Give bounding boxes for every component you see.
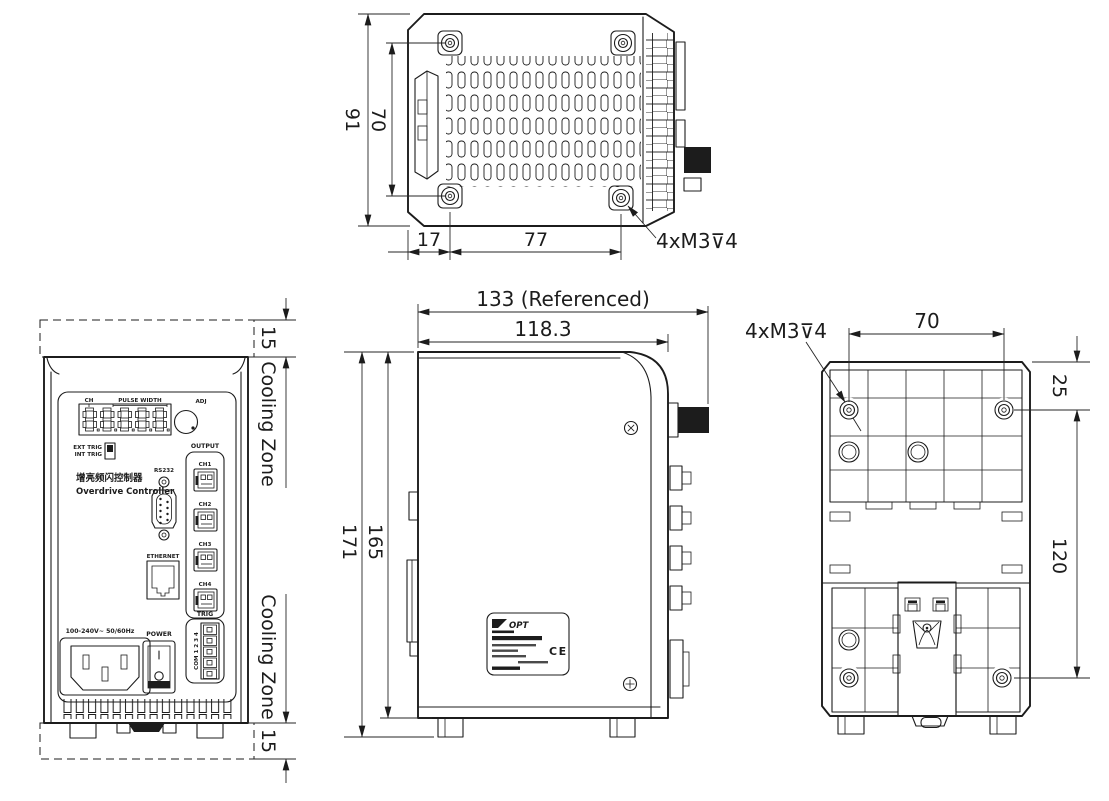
vent-hole-grid: [446, 56, 641, 187]
corner-screw-icon: [611, 31, 635, 55]
product-title-en: Overdrive Controller: [76, 487, 175, 497]
front-foot: [70, 723, 96, 738]
ch3-label: CH3: [199, 542, 212, 548]
rs232-label: RS232: [154, 468, 174, 474]
output-label: OUTPUT: [191, 443, 220, 450]
mount-screw-hole: [992, 398, 1017, 423]
front-view-dimensions: 15 Cooling Zone Cooling Zone 15: [248, 298, 296, 783]
back-foot: [990, 716, 1016, 734]
back-view: 4xM3⊽4 70 25 120: [745, 309, 1090, 734]
dim-133-referenced: 133 (Referenced): [476, 287, 650, 311]
dim-77: 77: [524, 229, 548, 251]
case-screw-icon: [622, 419, 640, 437]
dim-70-back: 70: [914, 309, 939, 333]
case-hole: [839, 442, 859, 462]
dim-25: 25: [1048, 374, 1070, 398]
side-foot: [438, 718, 463, 737]
dim-70: 70: [367, 108, 389, 132]
power-section: 100-240V~ 50/60Hz POWER: [60, 628, 175, 695]
bottom-vent-slots: [62, 699, 234, 719]
back-foot: [838, 716, 864, 734]
cooling-zone-label-bottom: Cooling Zone: [257, 594, 279, 720]
opt-logo-icon: [492, 619, 507, 628]
name-plate: OPT CE: [487, 613, 569, 675]
adj-knob[interactable]: [175, 411, 198, 434]
front-view: CH PULSE WIDTH ADJ EXT TRIG INT TRIG 增亮频…: [40, 298, 296, 783]
power-jack-top: [684, 147, 711, 173]
ch3-connector[interactable]: [194, 549, 217, 571]
int-trig-label: INT TRIG: [75, 452, 103, 458]
ch2-connector[interactable]: [194, 509, 217, 531]
ch2-label: CH2: [199, 502, 212, 508]
dim-171: 171: [338, 524, 360, 560]
corner-screw-icon: [609, 186, 633, 210]
ce-mark: CE: [549, 645, 568, 658]
back-top-grid: [830, 370, 1022, 502]
power-rating-label: 100-240V~ 50/60Hz: [66, 628, 135, 635]
cooling-zone-top: [40, 320, 254, 357]
dim-cooling-15-top: 15: [257, 326, 279, 350]
plate-brand: OPT: [509, 621, 529, 631]
ch1-connector[interactable]: [194, 469, 217, 491]
front-foot: [197, 723, 223, 738]
dim-118-3: 118.3: [514, 317, 571, 341]
din-clip-top: [415, 71, 438, 179]
mount-screw-hole: [837, 666, 862, 691]
side-connectors: [668, 403, 709, 698]
engineering-drawing-sheet: 91 70 17 77 4xM3⊽4 CH PULSE WIDTH: [0, 0, 1109, 797]
output-section: OUTPUT CH1 CH2 CH3 CH4: [186, 443, 224, 618]
case-hole: [908, 442, 928, 462]
ch4-label: CH4: [199, 582, 212, 588]
dim-91: 91: [341, 108, 363, 132]
ethernet-port[interactable]: ETHERNET: [147, 554, 180, 599]
back-bottom-grids: [832, 588, 1020, 712]
din-clip-side: [407, 492, 418, 656]
back-view-dimensions: 4xM3⊽4 70 25 120: [745, 309, 1090, 678]
power-label: POWER: [146, 631, 172, 638]
ext-trig-label: EXT TRIG: [73, 445, 102, 451]
trig-pins-label: COM 1 2 3 4: [194, 632, 200, 670]
side-foot: [610, 718, 635, 737]
side-view: OPT CE 133 (Referenced): [338, 287, 709, 737]
ch4-connector[interactable]: [194, 589, 217, 611]
heatsink-fins: [646, 33, 674, 211]
screw-callout-back: 4xM3⊽4: [745, 319, 827, 343]
rs232-connector[interactable]: RS232: [152, 468, 176, 540]
display-pulse-width-label: PULSE WIDTH: [118, 398, 162, 404]
cooling-zone-label-top: Cooling Zone: [257, 361, 279, 487]
dim-120: 120: [1048, 538, 1070, 574]
dim-165: 165: [364, 524, 386, 560]
case-screw-icon: [624, 678, 637, 691]
din-rail-clip-back[interactable]: [893, 582, 961, 728]
case-hole: [839, 630, 859, 650]
mount-screw-hole: [990, 666, 1015, 691]
product-title-cn: 增亮频闪控制器: [76, 472, 143, 484]
adj-label: ADJ: [195, 399, 206, 405]
seven-segment-display: [79, 404, 171, 435]
power-jack-side: [678, 407, 709, 433]
trig-label: TRIG: [197, 611, 213, 618]
dim-17: 17: [417, 229, 441, 251]
top-view: 91 70 17 77 4xM3⊽4: [341, 14, 738, 260]
side-view-dimensions: 133 (Referenced) 118.3 171 165: [338, 287, 708, 737]
screw-callout-top: 4xM3⊽4: [656, 229, 738, 253]
din-clip-front: [128, 723, 165, 732]
drawing-canvas: 91 70 17 77 4xM3⊽4 CH PULSE WIDTH: [0, 0, 1109, 797]
trig-section: TRIG COM 1 2 3 4: [186, 611, 224, 683]
display-ch-label: CH: [85, 398, 94, 404]
back-middle-band: [822, 502, 1030, 583]
ethernet-label: ETHERNET: [147, 554, 180, 560]
dim-cooling-15-bottom: 15: [257, 729, 279, 753]
ch1-label: CH1: [199, 462, 212, 468]
